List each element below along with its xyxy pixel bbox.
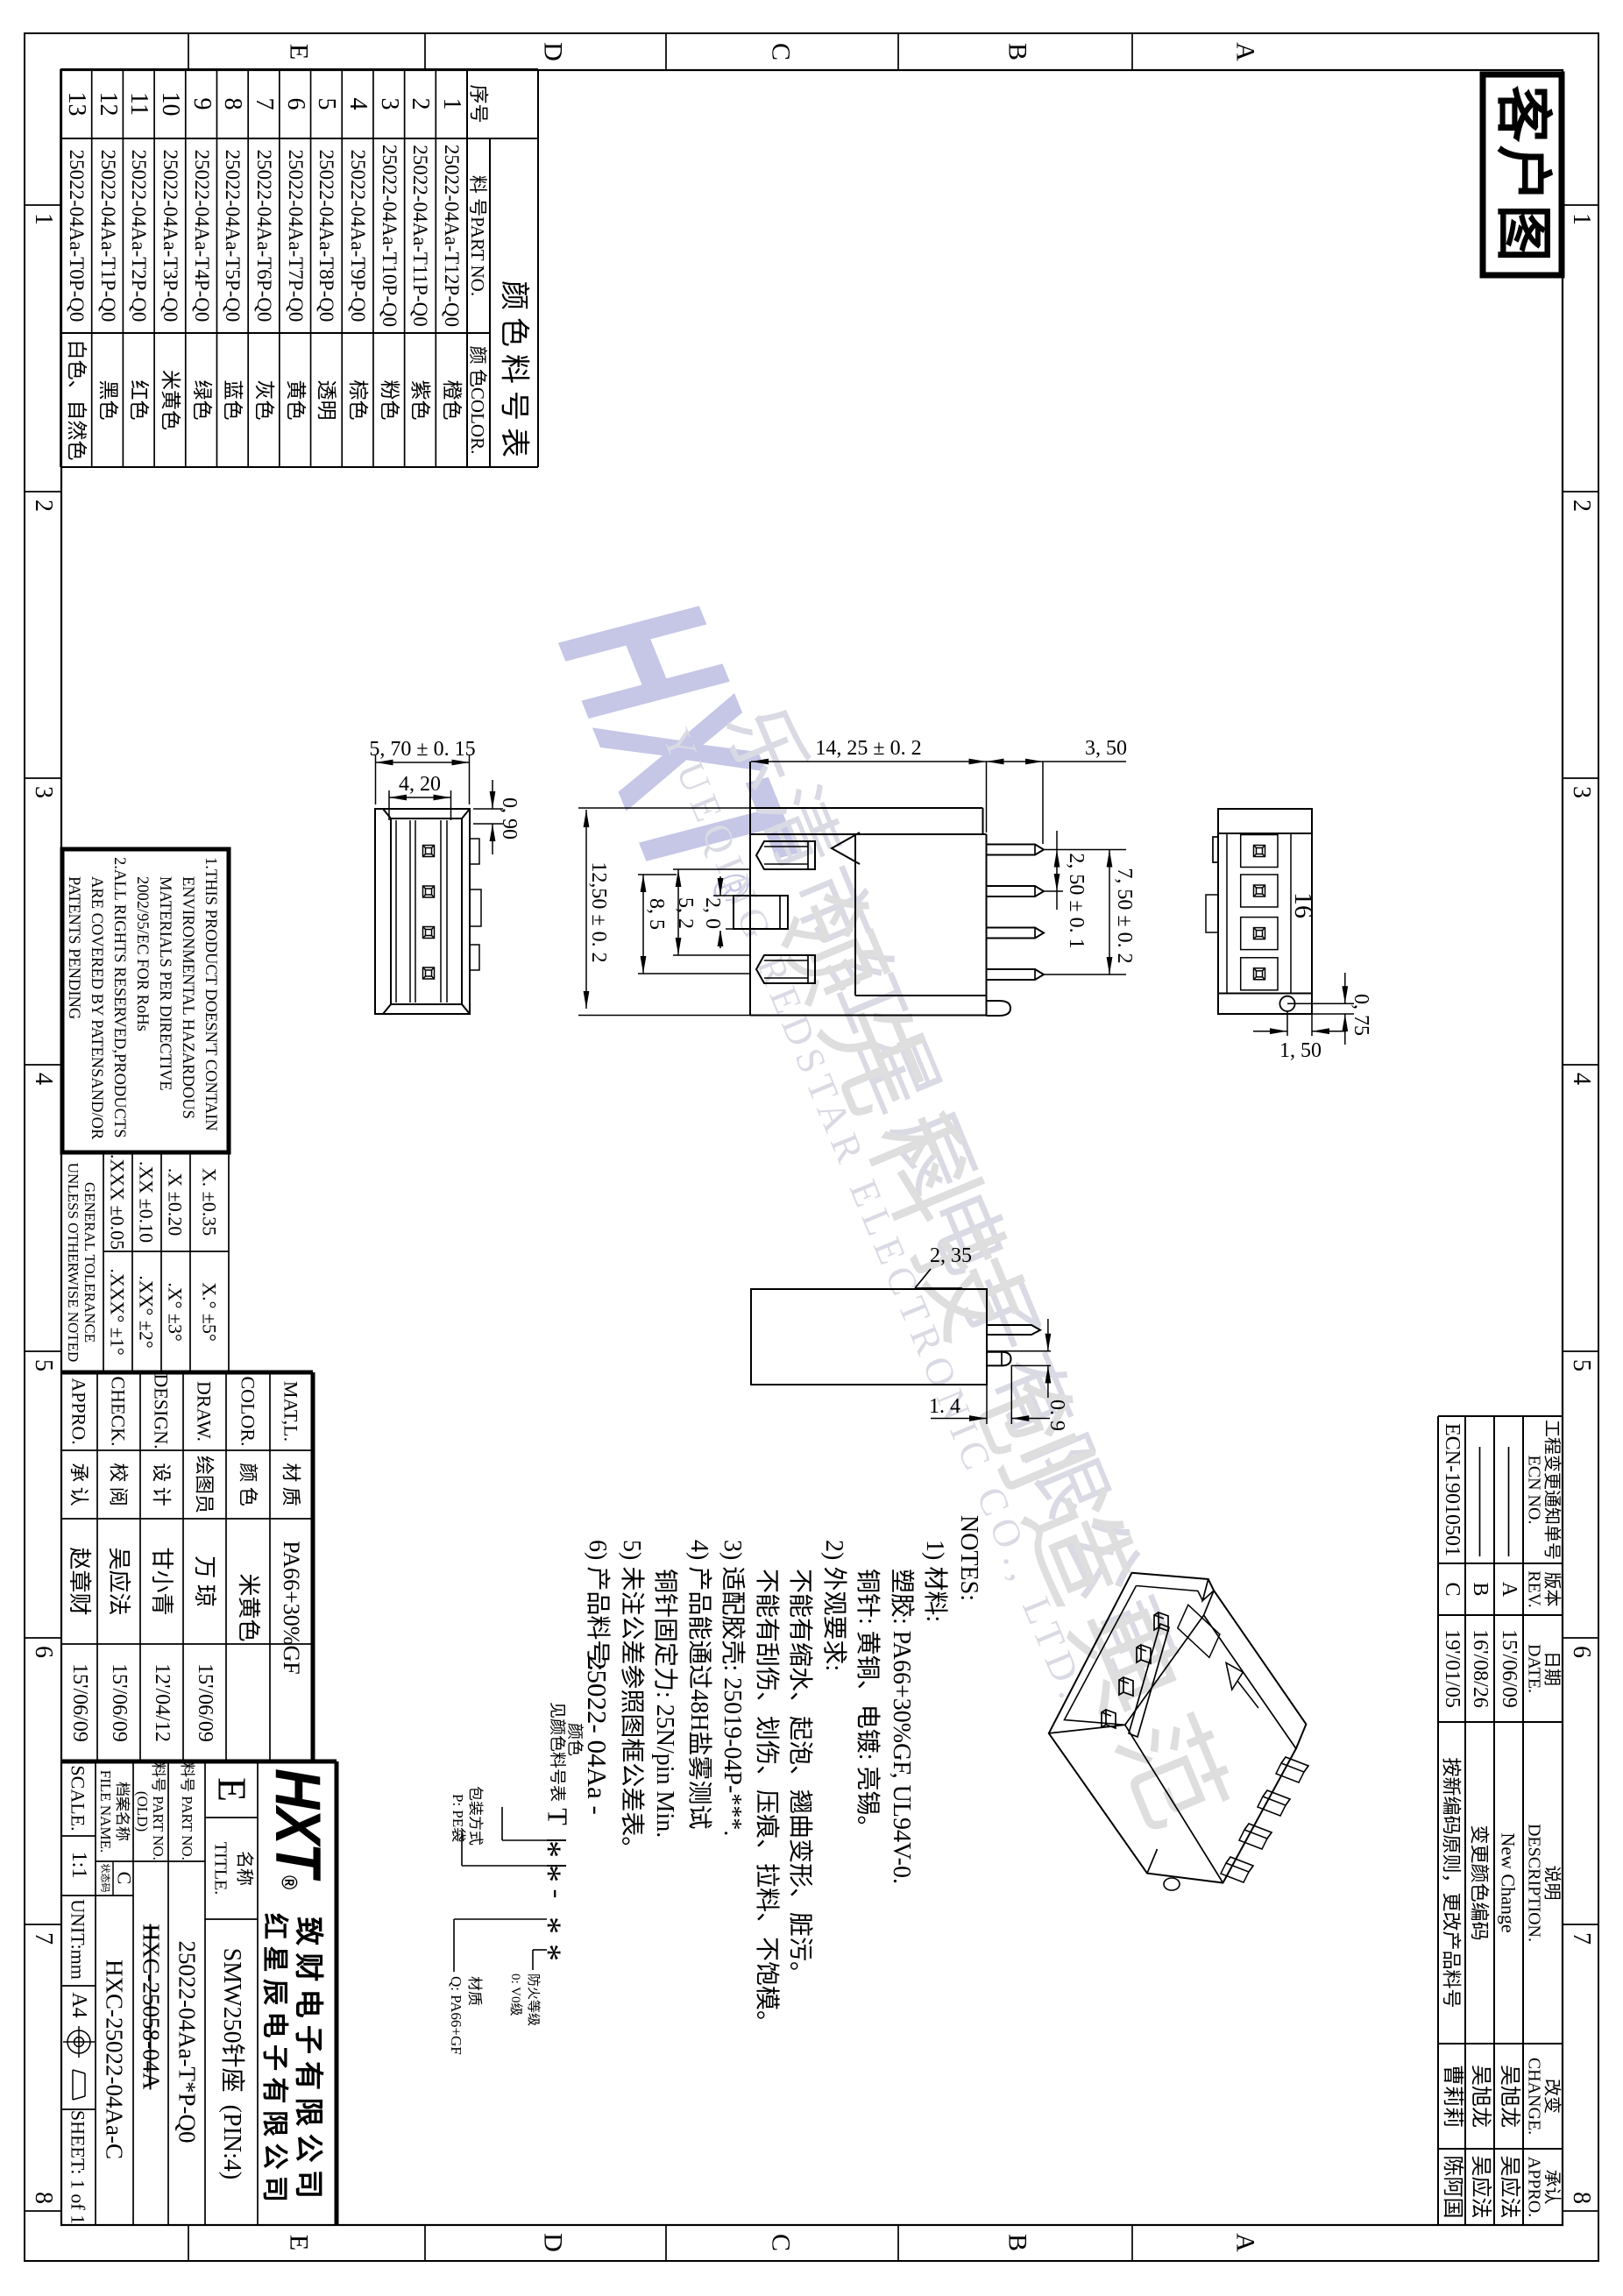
svg-text:16: 16 bbox=[1289, 892, 1318, 918]
svg-text:2, 50 ± 0. 1: 2, 50 ± 0. 1 bbox=[1065, 853, 1088, 948]
svg-text:12,50 ± 0. 2: 12,50 ± 0. 2 bbox=[587, 861, 610, 962]
svg-text:14, 25 ± 0. 2: 14, 25 ± 0. 2 bbox=[815, 737, 921, 760]
svg-text:2, 0: 2, 0 bbox=[701, 897, 724, 929]
svg-text:7, 50 ± 0. 2: 7, 50 ± 0. 2 bbox=[1113, 868, 1136, 963]
svg-text:8, 5: 8, 5 bbox=[645, 898, 668, 930]
svg-text:3, 50: 3, 50 bbox=[1085, 737, 1127, 760]
svg-text:0. 9: 0. 9 bbox=[1045, 1400, 1068, 1431]
svg-text:5, 2: 5, 2 bbox=[674, 897, 697, 929]
svg-text:1, 50: 1, 50 bbox=[1279, 1039, 1322, 1062]
svg-text:0, 75: 0, 75 bbox=[1350, 994, 1372, 1036]
svg-text:4, 20: 4, 20 bbox=[399, 773, 441, 796]
svg-text:1. 4: 1. 4 bbox=[929, 1395, 960, 1418]
svg-text:2, 35: 2, 35 bbox=[930, 1244, 972, 1267]
svg-text:0, 90: 0, 90 bbox=[498, 797, 521, 840]
svg-text:5, 70 ± 0. 15: 5, 70 ± 0. 15 bbox=[369, 738, 475, 761]
